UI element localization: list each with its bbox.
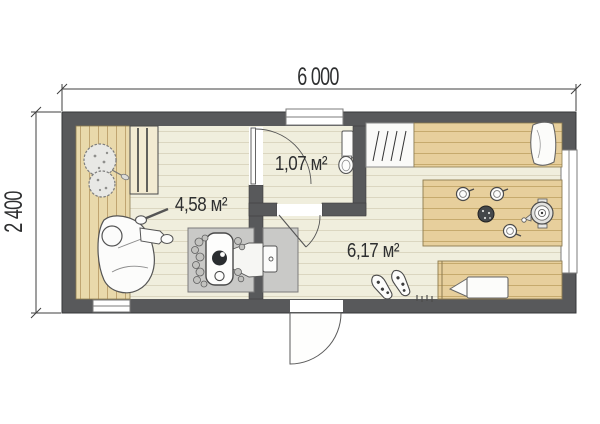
- floor-plan-drawing: 6 000 2 400: [0, 0, 600, 424]
- room-label-lounge: 6,17 м²: [347, 239, 399, 262]
- dimension-height: [31, 107, 61, 318]
- dimension-height-label: 2 400: [0, 191, 28, 233]
- window-bottom: [93, 300, 130, 312]
- tiered-bench: [130, 126, 158, 194]
- floor-plan-svg: 6 000 2 400: [0, 0, 600, 424]
- plate-icon: [478, 206, 494, 222]
- coat-hangers-icon: [366, 123, 414, 167]
- window-right: [561, 150, 577, 273]
- room-label-washroom: 1,07 м²: [275, 152, 327, 175]
- room-label-sauna: 4,58 м²: [175, 193, 227, 216]
- person-head: [102, 226, 122, 246]
- entrance-door-swing: [290, 300, 343, 364]
- dimension-width-label: 6 000: [297, 62, 339, 91]
- pillow-top: [531, 122, 556, 165]
- table-with-tea-set: [423, 180, 562, 246]
- window-top: [286, 109, 343, 125]
